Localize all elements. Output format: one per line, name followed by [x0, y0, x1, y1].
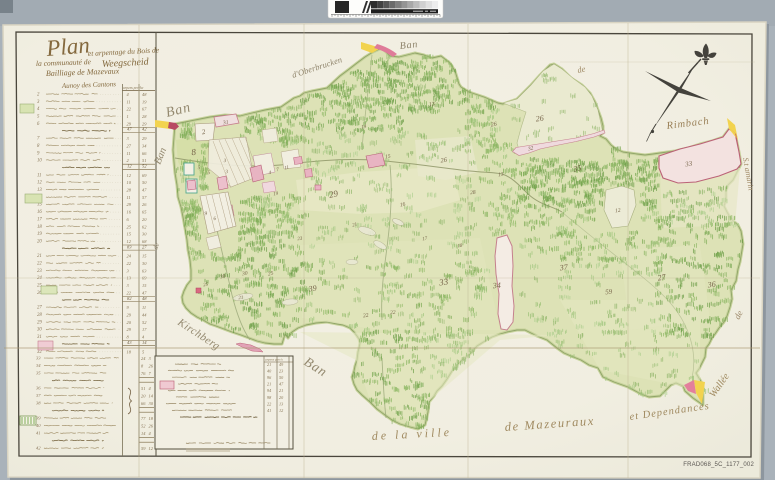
- svg-text:12: 12: [127, 164, 132, 169]
- svg-text:11: 11: [37, 173, 41, 178]
- svg-text:33: 33: [36, 356, 41, 361]
- svg-text:30: 30: [37, 328, 42, 333]
- svg-text:21: 21: [267, 382, 271, 387]
- svg-text:26: 26: [490, 122, 497, 129]
- svg-text:94: 94: [267, 388, 271, 393]
- svg-text:13: 13: [498, 172, 504, 179]
- svg-text:18: 18: [37, 225, 42, 230]
- svg-text:13: 13: [279, 401, 283, 406]
- svg-text:21: 21: [238, 296, 243, 301]
- svg-text:27: 27: [142, 244, 147, 249]
- svg-text:17: 17: [37, 217, 42, 222]
- svg-text:12: 12: [615, 208, 621, 215]
- svg-text:12: 12: [37, 181, 42, 186]
- svg-text:16: 16: [37, 210, 42, 215]
- svg-text:47: 47: [127, 127, 132, 132]
- svg-text:14: 14: [142, 340, 147, 345]
- svg-text:10: 10: [37, 159, 42, 164]
- svg-text:13: 13: [37, 188, 42, 193]
- svg-text:51: 51: [142, 158, 146, 163]
- svg-text:42: 42: [36, 446, 41, 451]
- svg-text:27: 27: [37, 306, 42, 311]
- svg-text:15: 15: [385, 154, 391, 161]
- svg-text:83: 83: [127, 244, 132, 249]
- svg-text:FRAD068_5C_1177_002: FRAD068_5C_1177_002: [683, 462, 754, 468]
- svg-text:18: 18: [457, 244, 463, 249]
- svg-text:41: 41: [267, 408, 271, 413]
- svg-text:19: 19: [37, 232, 42, 237]
- svg-text:31: 31: [222, 120, 230, 127]
- svg-text:36: 36: [706, 280, 716, 290]
- svg-text:13: 13: [428, 102, 435, 109]
- svg-text:52: 52: [142, 164, 147, 169]
- svg-text:21: 21: [37, 254, 42, 259]
- svg-text:11: 11: [142, 305, 146, 310]
- svg-text:34: 34: [492, 281, 502, 291]
- svg-text:arpens perche: arpens perche: [123, 86, 144, 90]
- svg-text:37: 37: [36, 393, 41, 398]
- svg-text:28: 28: [470, 190, 476, 197]
- svg-text:23: 23: [37, 269, 42, 274]
- svg-text:42: 42: [142, 127, 147, 132]
- svg-text:20: 20: [37, 240, 42, 245]
- svg-text:22: 22: [363, 313, 370, 320]
- svg-text:21: 21: [279, 388, 283, 393]
- svg-text:21: 21: [267, 362, 271, 367]
- svg-text:22: 22: [390, 310, 396, 316]
- svg-text:39: 39: [36, 416, 41, 421]
- svg-text:33: 33: [684, 160, 694, 169]
- svg-text:43: 43: [127, 340, 132, 345]
- svg-text:34: 34: [36, 363, 41, 368]
- svg-text:41: 41: [36, 431, 41, 436]
- svg-text:26: 26: [535, 114, 544, 124]
- svg-text:30: 30: [241, 271, 248, 278]
- svg-text:Ban: Ban: [399, 39, 419, 52]
- svg-text:1: 1: [127, 114, 129, 119]
- svg-text:11: 11: [127, 151, 131, 156]
- svg-text:35: 35: [36, 371, 41, 376]
- svg-text:11: 11: [127, 99, 131, 104]
- svg-text:38: 38: [36, 401, 41, 406]
- svg-text:82: 82: [127, 296, 132, 301]
- svg-text:32: 32: [37, 350, 42, 355]
- svg-text:51: 51: [141, 386, 145, 391]
- svg-text:29: 29: [37, 320, 42, 325]
- svg-text:48: 48: [142, 296, 147, 301]
- svg-text:28: 28: [37, 313, 42, 318]
- svg-text:11: 11: [127, 195, 131, 200]
- svg-text:39: 39: [307, 284, 317, 294]
- svg-text:22: 22: [37, 262, 42, 267]
- svg-text:12: 12: [279, 408, 283, 413]
- svg-text:15: 15: [37, 203, 42, 208]
- svg-text:31: 31: [37, 335, 42, 340]
- svg-text:40: 40: [36, 423, 41, 428]
- svg-text:24: 24: [37, 276, 42, 281]
- svg-text:36: 36: [36, 386, 41, 391]
- svg-text:23: 23: [279, 368, 283, 373]
- svg-text:22: 22: [267, 401, 271, 406]
